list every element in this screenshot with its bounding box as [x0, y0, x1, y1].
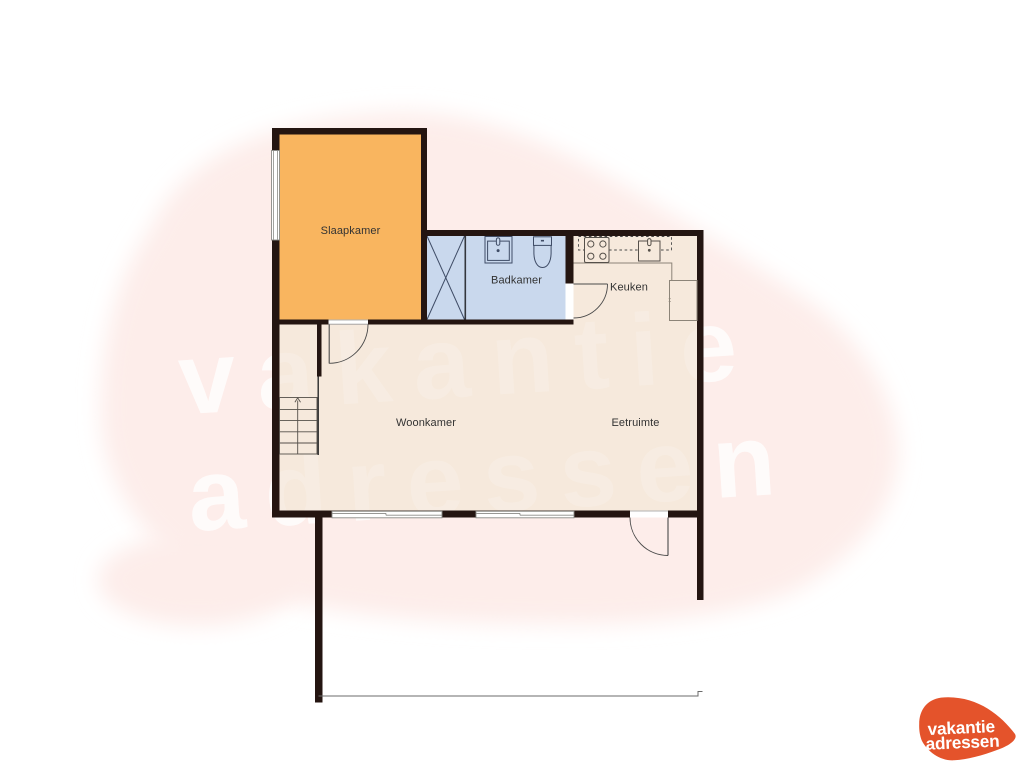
svg-text:Badkamer: Badkamer [491, 275, 542, 287]
svg-text:Keuken: Keuken [610, 282, 648, 294]
svg-text:Slaapkamer: Slaapkamer [321, 225, 381, 237]
svg-text:Eetruimte: Eetruimte [612, 417, 660, 429]
svg-text:Woonkamer: Woonkamer [396, 417, 456, 429]
svg-text:adressen: adressen [925, 731, 1000, 754]
